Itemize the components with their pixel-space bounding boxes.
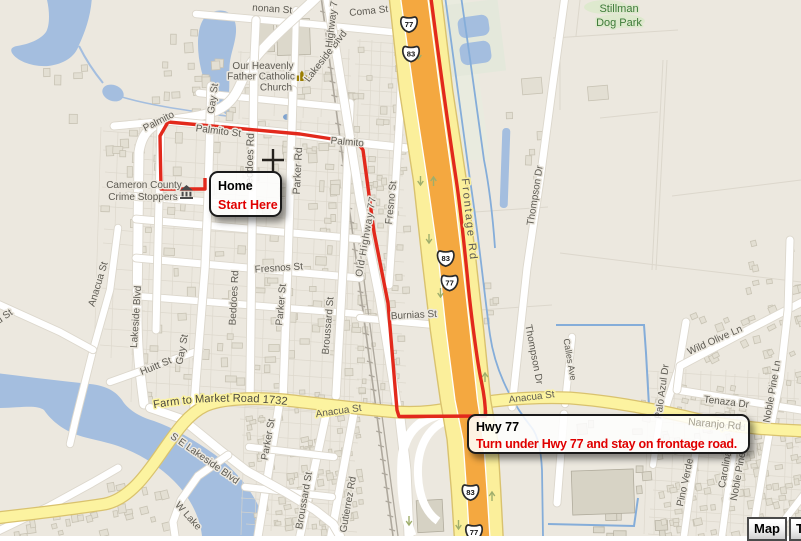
svg-text:Crime Stoppers: Crime Stoppers [108,192,177,203]
svg-text:Father Catholic: Father Catholic [227,72,295,83]
svg-text:83: 83 [407,49,415,58]
svg-text:83: 83 [441,254,449,263]
svg-text:Church: Church [260,83,292,94]
svg-text:77: 77 [470,528,478,536]
svg-text:Our Heavenly: Our Heavenly [232,61,293,72]
svg-text:Dog Park: Dog Park [596,17,642,29]
svg-text:Stillman: Stillman [599,3,638,15]
svg-text:83: 83 [466,488,474,497]
svg-text:77: 77 [405,20,413,29]
svg-text:Cameron County: Cameron County [106,180,182,191]
svg-text:77: 77 [445,278,453,287]
svg-text:Parker Rd: Parker Rd [291,147,305,195]
